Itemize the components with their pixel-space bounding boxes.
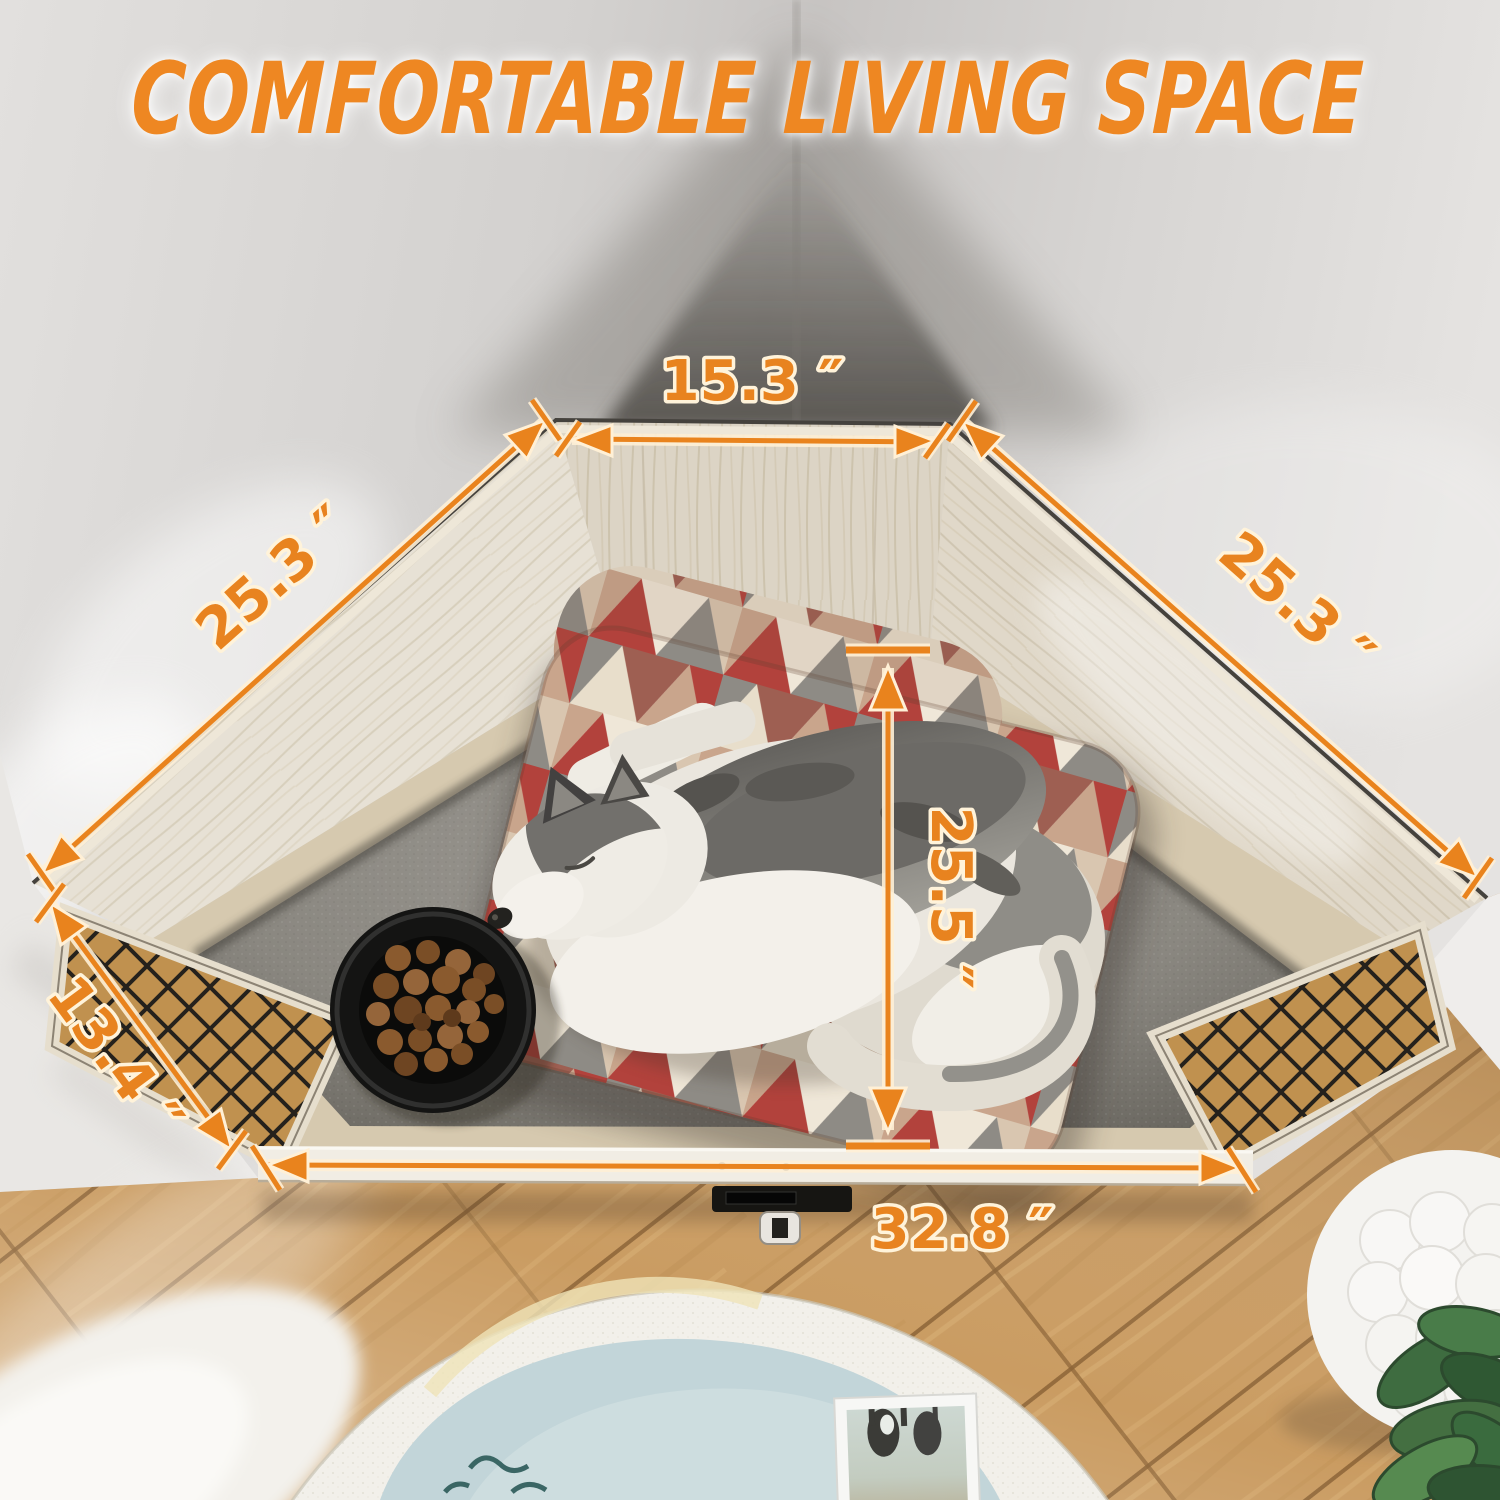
product-image: 15.3 ″ 25.3 ″ 25.3 ″ 25 (0, 0, 1500, 1500)
dimension-back-width-label: 15.3 ″ (661, 349, 844, 414)
dimension-front-width-label: 32.8 ″ (871, 1197, 1054, 1262)
photo-frame (834, 1393, 981, 1500)
photo-frame-photo (847, 1406, 969, 1500)
dimension-inner-depth-label: 25.5 ″ (918, 807, 983, 990)
scene: 15.3 ″ 25.3 ″ 25.3 ″ 25 (0, 0, 1500, 1500)
product-title: COMFORTABLE LIVING SPACE (0, 42, 1500, 157)
